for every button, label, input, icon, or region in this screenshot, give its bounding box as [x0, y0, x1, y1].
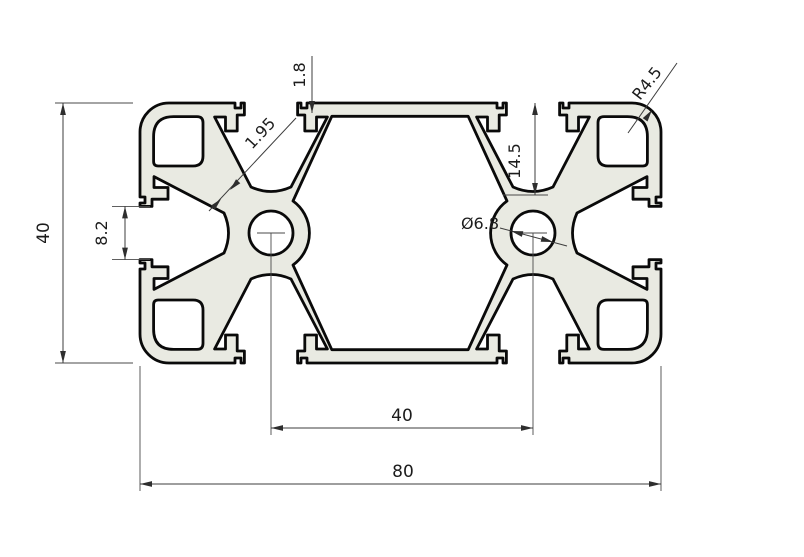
- slot-depth-label: 14.5: [505, 143, 524, 179]
- profile-body: [140, 103, 661, 363]
- web-wall-label: 1.95: [241, 114, 279, 153]
- slot-lip-label: 1.8: [290, 62, 309, 87]
- overall-height-label: 40: [34, 222, 54, 244]
- center-hole-label: Ø6.8: [461, 214, 499, 233]
- hole-spacing-label: 40: [391, 406, 413, 426]
- drawing-canvas: 40 8.2 14.5 1.8 1.95 Ø6.8 R4.5 40 80: [0, 0, 804, 557]
- central-cavity: [293, 116, 507, 349]
- overall-width-label: 80: [392, 462, 414, 482]
- corner-radius-label: R4.5: [628, 63, 665, 104]
- end-slot-opening-label: 8.2: [92, 220, 111, 245]
- extrusion-profile-drawing: 40 8.2 14.5 1.8 1.95 Ø6.8 R4.5 40 80: [0, 0, 804, 557]
